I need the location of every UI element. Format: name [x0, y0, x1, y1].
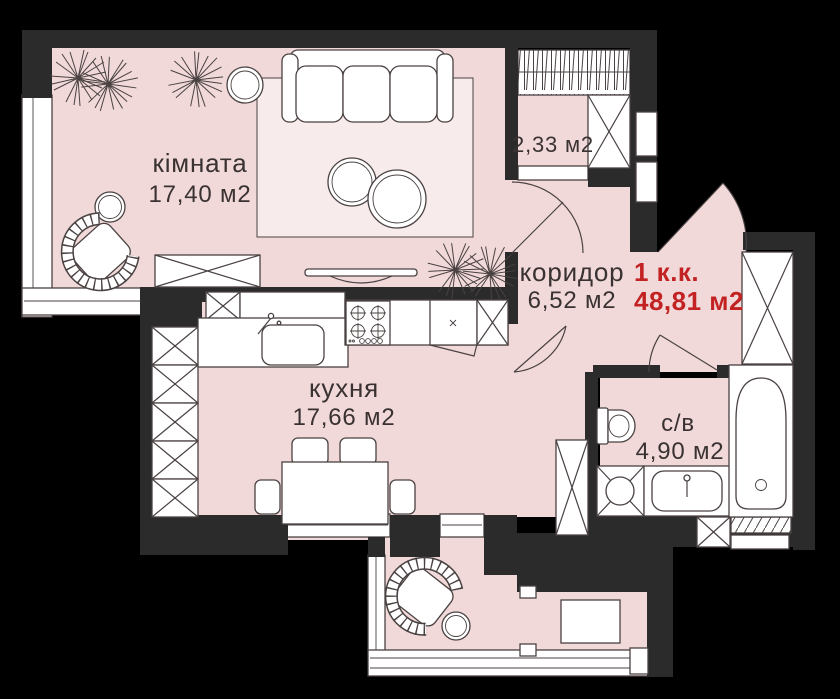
- living-room-label: кімната: [153, 148, 248, 178]
- nook-cabinet: [556, 440, 588, 535]
- corridor-wardrobe: [742, 252, 793, 364]
- window-bottom-left: [22, 288, 144, 315]
- floor-plan-svg: кімната 17,40 м2 2,33 м2 коридор 6,52 м2…: [0, 0, 840, 699]
- dining-table: [282, 462, 388, 524]
- chair: [390, 480, 415, 514]
- kitchen-window-b: [440, 514, 484, 537]
- chair: [340, 438, 376, 465]
- floor-plan-canvas: кімната 17,40 м2 2,33 м2 коридор 6,52 м2…: [0, 0, 840, 699]
- wall-balcony-right: [647, 585, 673, 677]
- wall-right-lower: [793, 250, 815, 550]
- corridor-area: 6,52 м2: [528, 287, 617, 314]
- living-room-door-opening: [505, 180, 518, 252]
- vanity-sink: [644, 466, 731, 516]
- wall-kitchen-left: [140, 300, 152, 517]
- upper-cabinet-x: [206, 292, 240, 320]
- side-table: [442, 612, 470, 640]
- bathtub: [729, 365, 793, 517]
- balcony-closet: [588, 95, 630, 168]
- bathroom-label: с/в: [661, 410, 695, 437]
- wall-entry-right: [743, 232, 815, 250]
- balcony-area: 2,33 м2: [512, 132, 594, 157]
- plant-pot: [227, 67, 263, 103]
- duct-box: [731, 535, 789, 549]
- stove: [346, 301, 390, 345]
- wall-bath-top-left: [593, 365, 660, 378]
- chair: [255, 480, 280, 514]
- duct-hatched: [731, 517, 791, 533]
- balcony-window-bottom: [368, 650, 650, 676]
- apartment-total-area: 48,81 м2: [634, 286, 744, 316]
- wall-kitchen-bottom-left: [140, 515, 288, 555]
- tall-cabinet-column: [152, 327, 198, 517]
- wall-under-closet: [588, 166, 630, 187]
- shaft-niche-b: [636, 162, 657, 202]
- fridge: [477, 300, 508, 345]
- tv-console: [155, 255, 260, 287]
- apartment-type-label: 1 к.к.: [634, 257, 699, 287]
- sofa: [282, 50, 453, 122]
- kitchen-area: 17,66 м2: [293, 404, 396, 431]
- balcony-window-left: [368, 555, 385, 657]
- wall-corner-top-left: [22, 30, 52, 98]
- window-post-b: [520, 644, 536, 656]
- living-room-area: 17,40 м2: [149, 181, 252, 208]
- balcony-glazing-hatch: [518, 50, 630, 95]
- washing-machine: [597, 466, 644, 516]
- window-post-a: [520, 586, 536, 598]
- desk: [561, 600, 620, 643]
- shaft-niche-a: [636, 112, 657, 156]
- window-post-c: [630, 648, 648, 674]
- wall-top: [22, 30, 657, 48]
- bathroom-area: 4,90 м2: [636, 438, 725, 465]
- upper-cabinet: [240, 292, 345, 320]
- wall-room-balcony: [505, 46, 518, 180]
- toilet: [597, 408, 635, 444]
- kitchen-label: кухня: [309, 373, 379, 403]
- wall-kitchen-bottom-right: [484, 515, 517, 575]
- wall-balcony-corner: [368, 537, 385, 557]
- wall-kitchen-bottom-mid: [390, 515, 440, 557]
- chair: [292, 438, 328, 465]
- fold-cabinet: [697, 517, 730, 547]
- window-left: [22, 95, 52, 317]
- corridor-label: коридор: [520, 257, 625, 287]
- balcony-threshold-step: [518, 166, 588, 180]
